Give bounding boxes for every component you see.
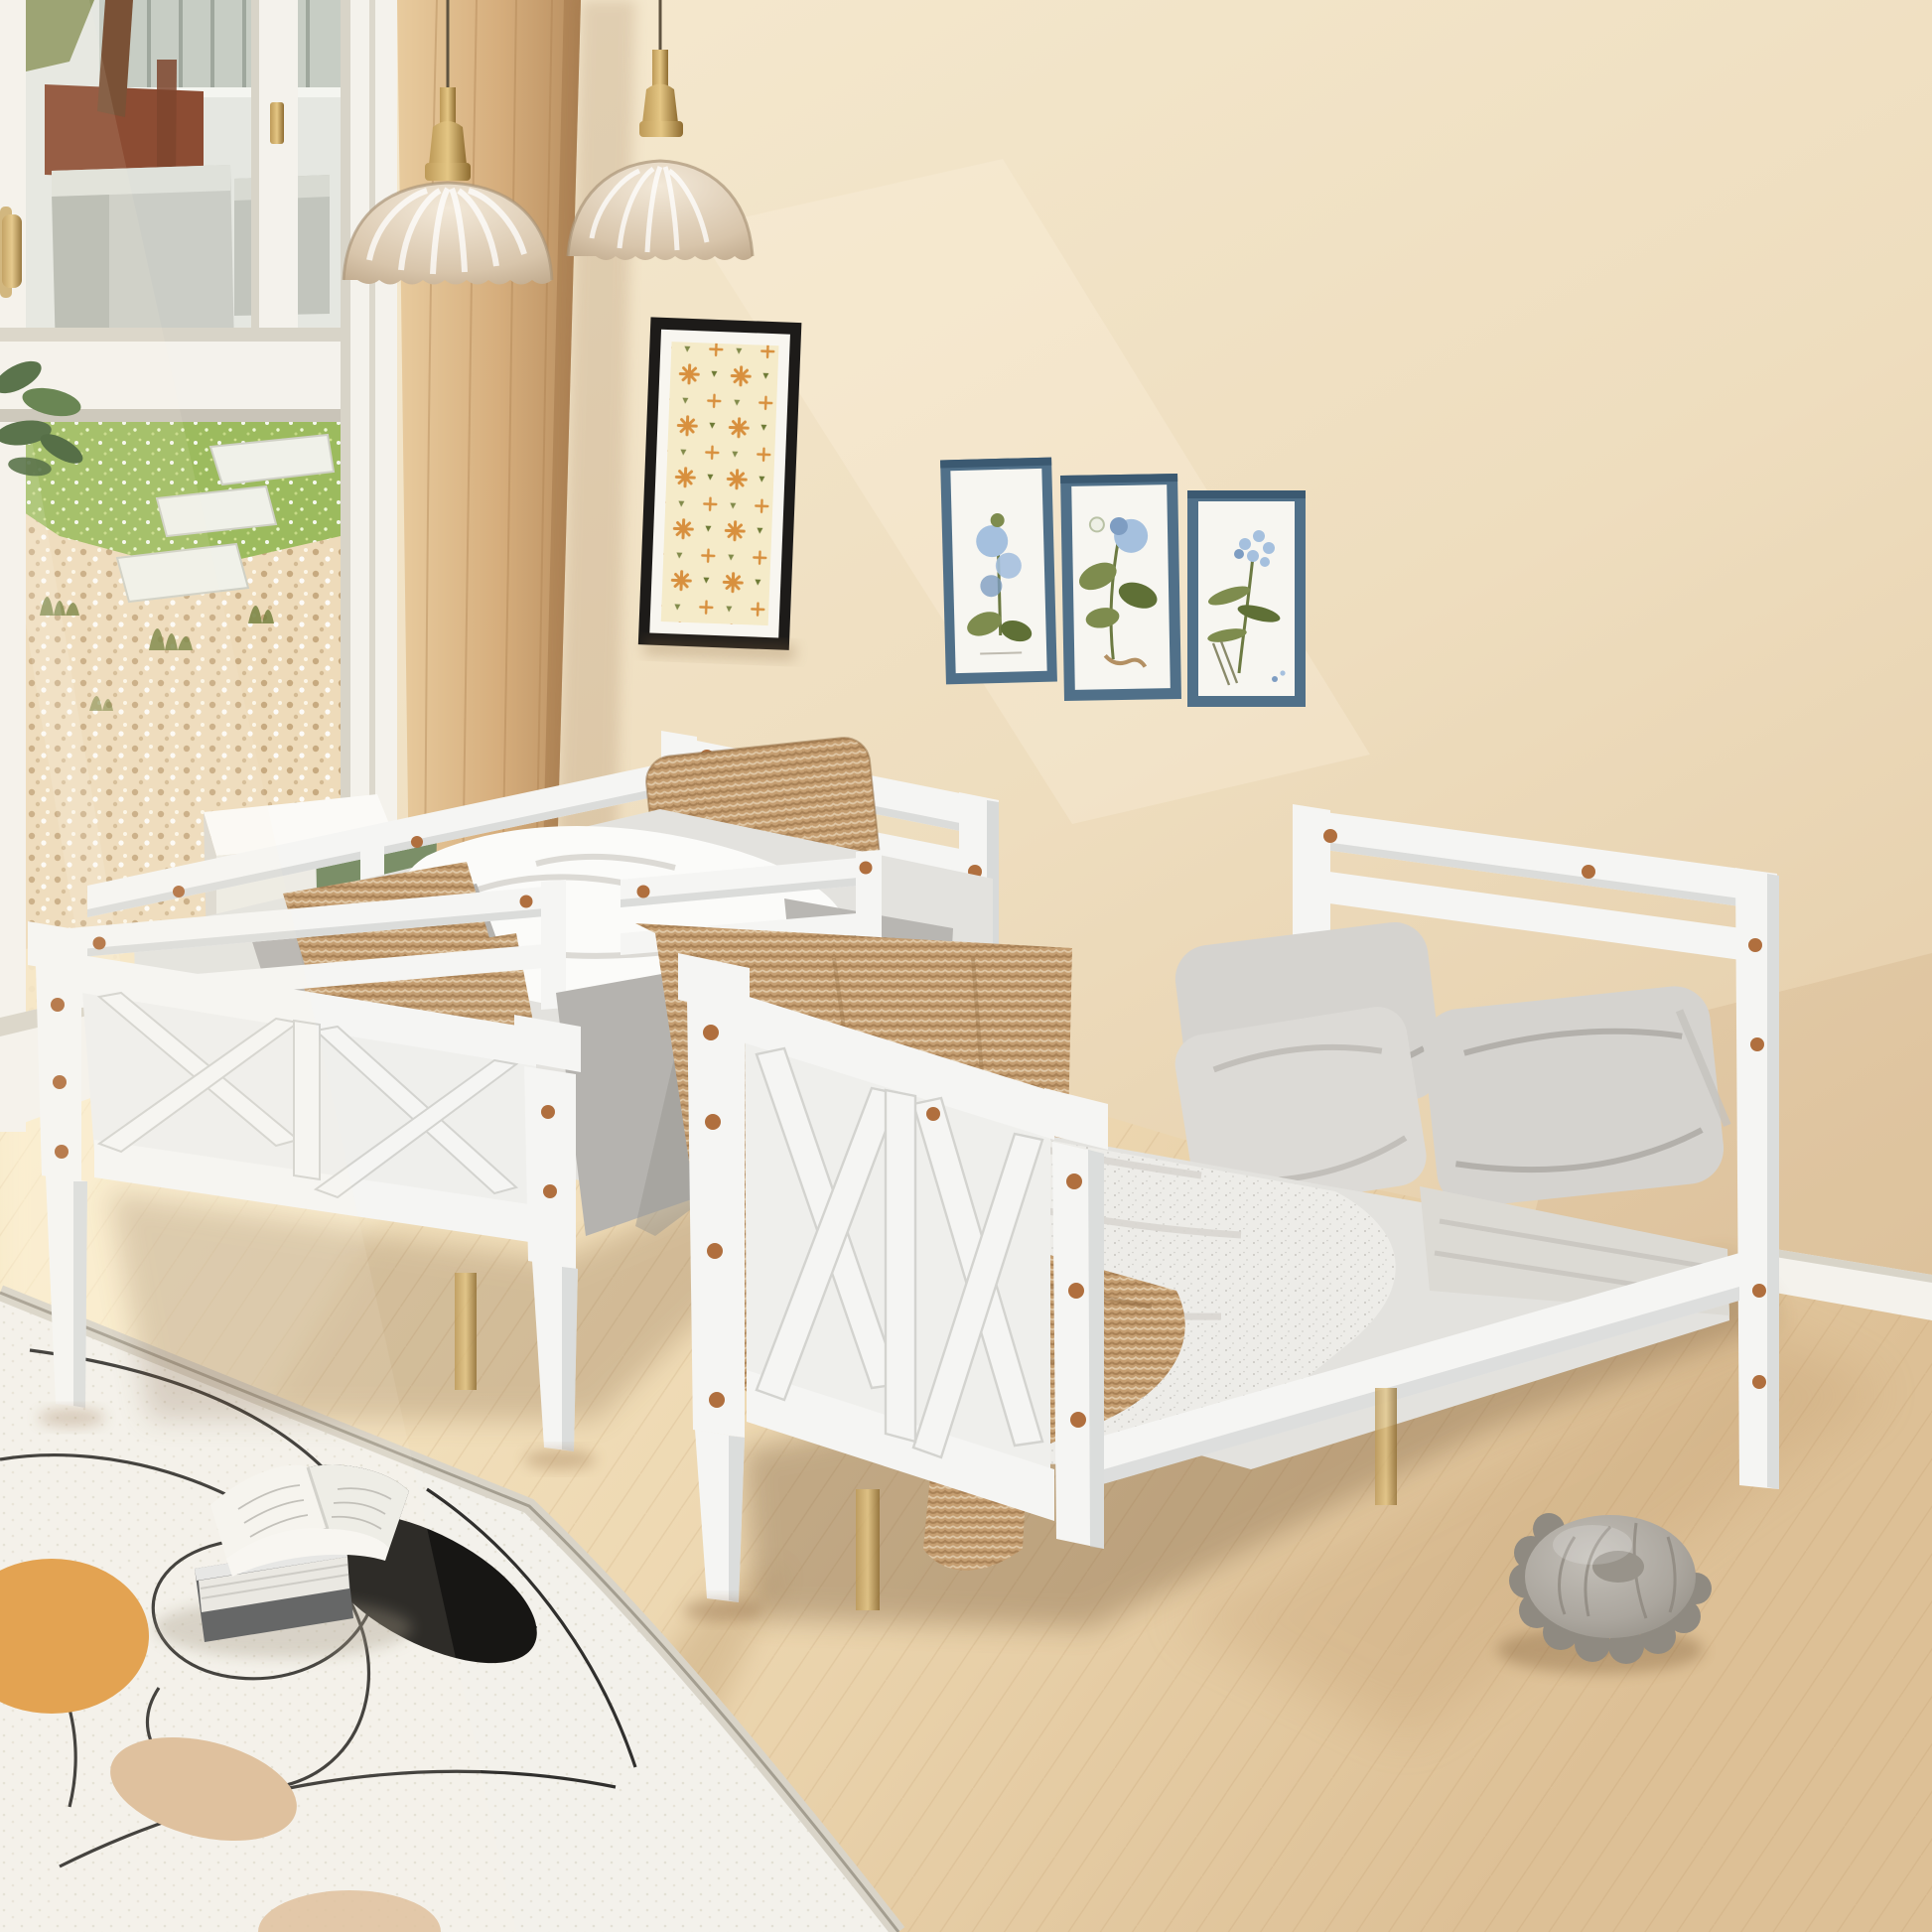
lamp-socket — [642, 84, 678, 124]
bedroom-photo — [0, 0, 1932, 1932]
center-support-leg — [856, 1489, 880, 1610]
botanical-print-3 — [1187, 490, 1306, 707]
black-framed-art — [637, 317, 807, 660]
center-support-leg — [455, 1273, 477, 1390]
lamp-stem — [652, 50, 668, 89]
lamp-socket — [429, 121, 467, 165]
botanical-print-1 — [940, 458, 1057, 685]
scene-canvas — [0, 0, 1932, 1932]
pattern-print — [661, 342, 779, 625]
botanical-print-2 — [1060, 474, 1181, 701]
window-hinge — [270, 102, 284, 144]
center-support-leg — [1375, 1388, 1397, 1505]
